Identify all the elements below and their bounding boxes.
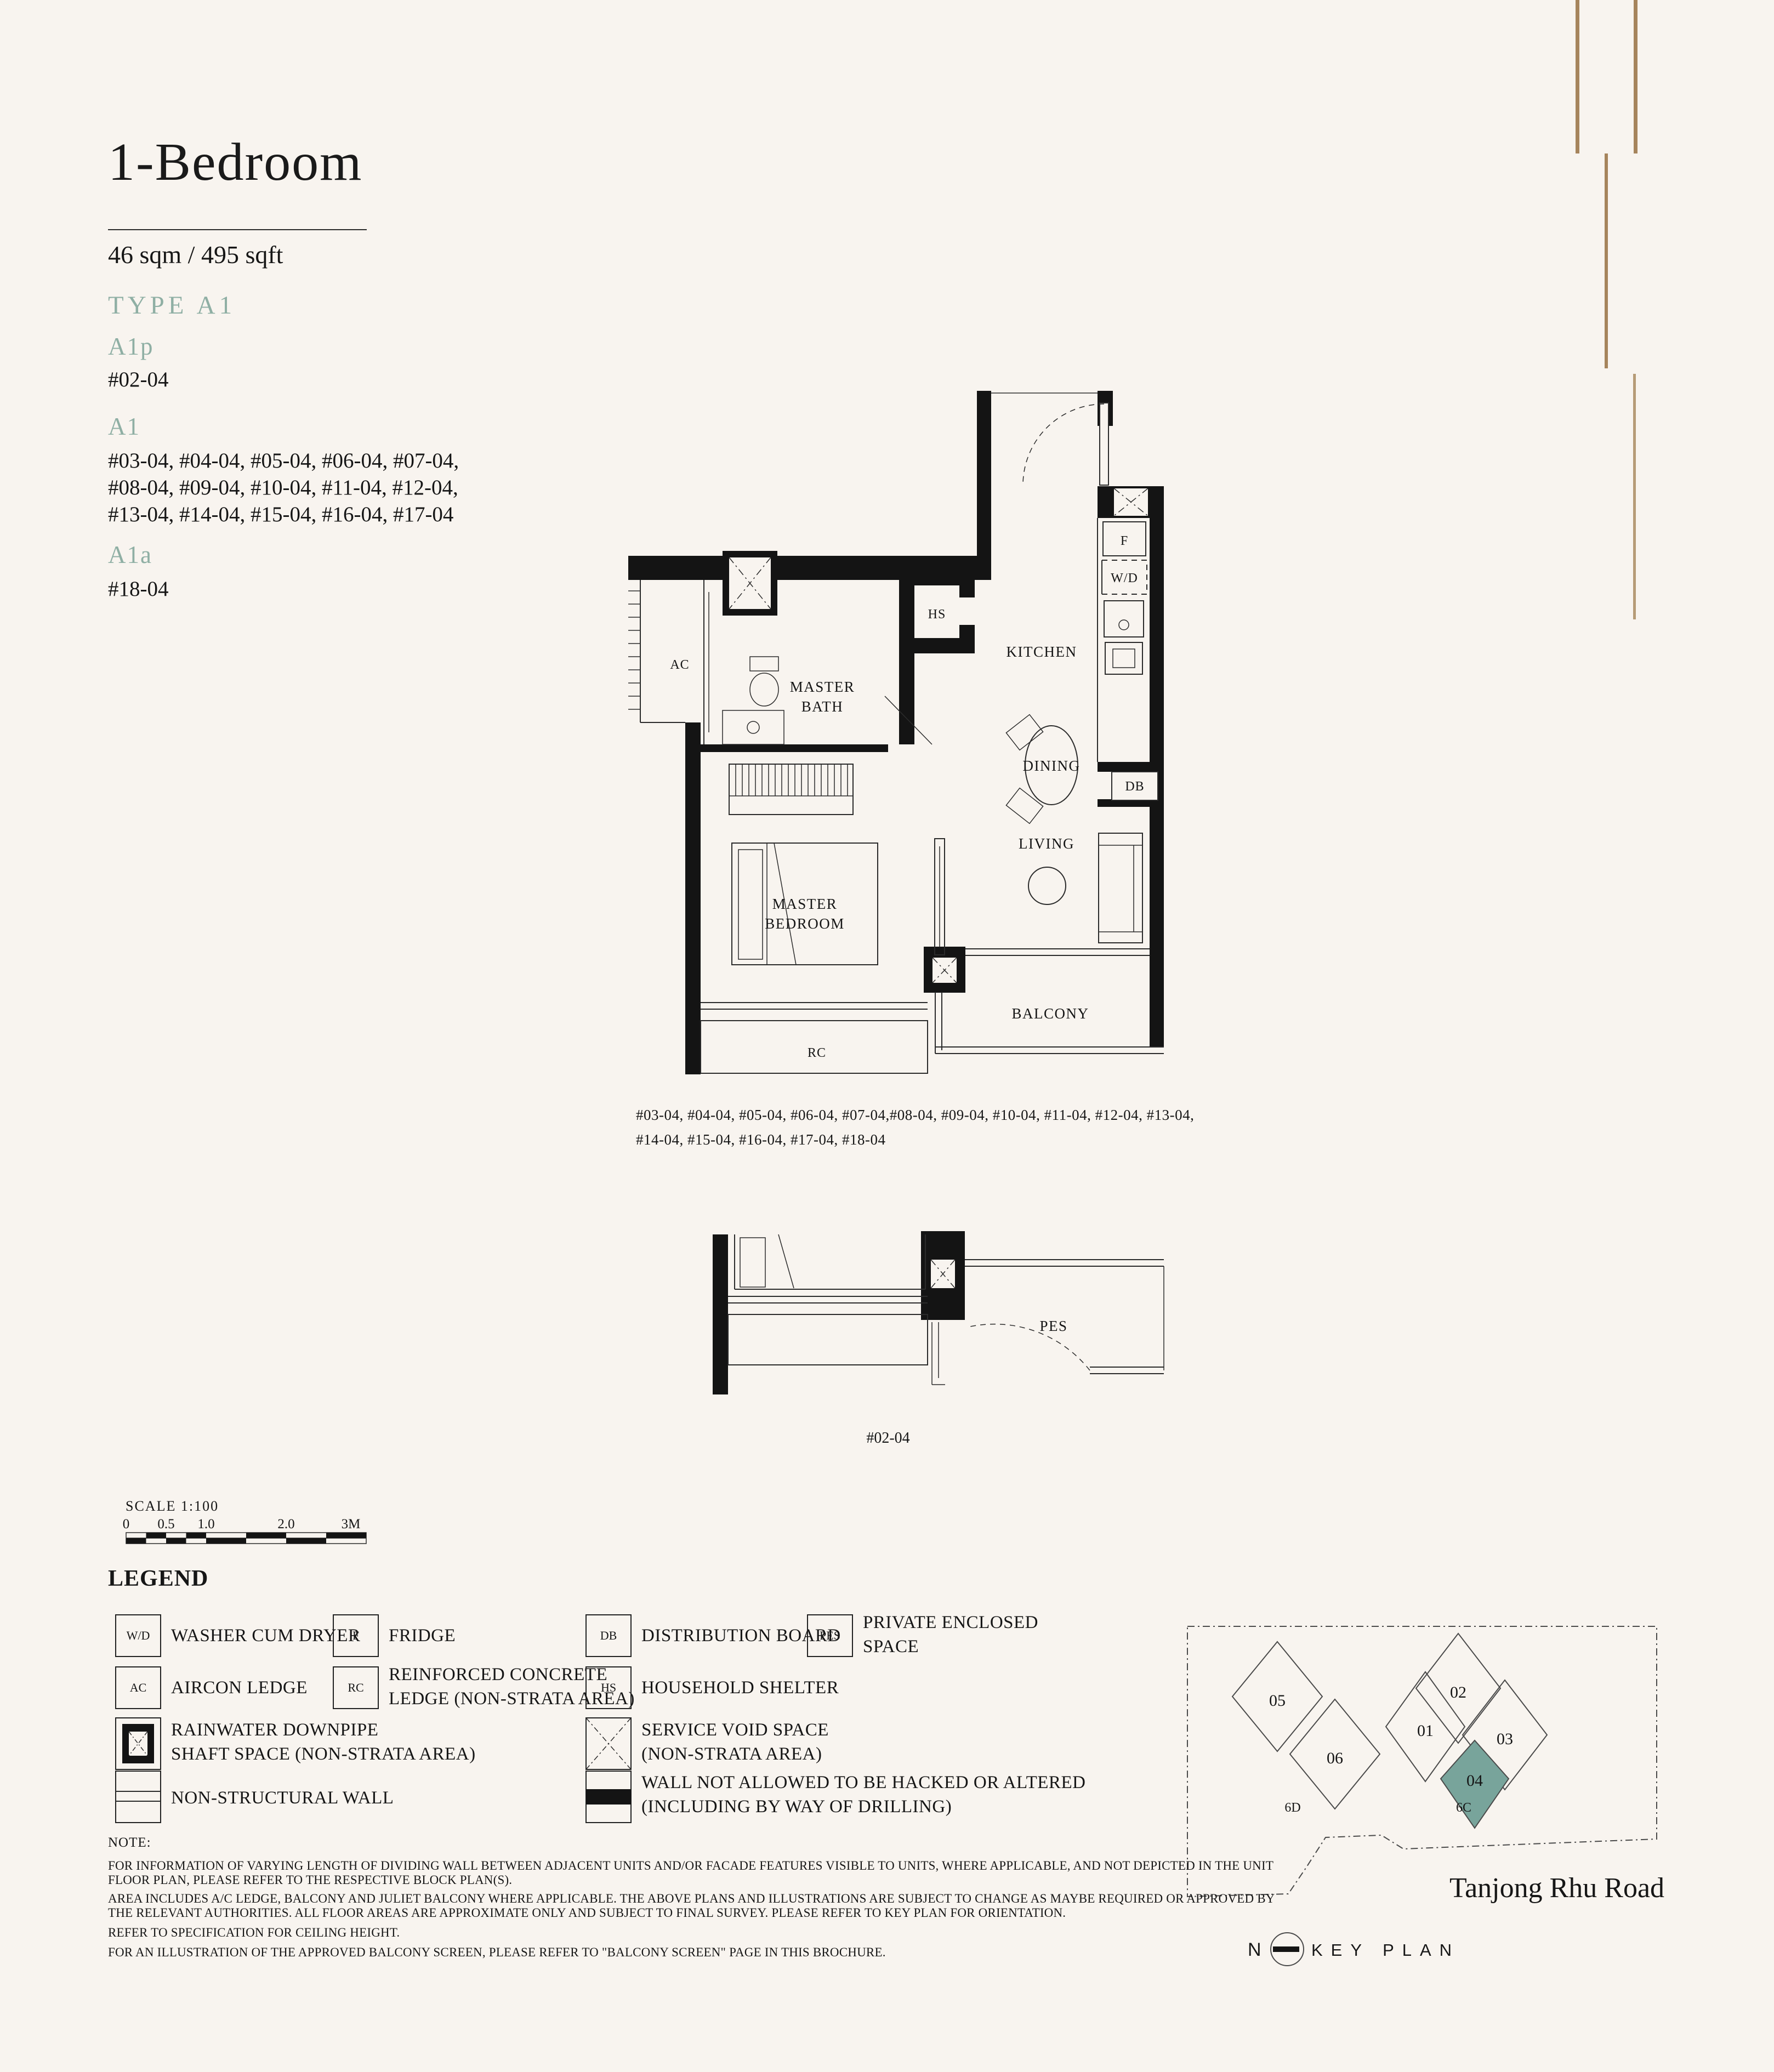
legend-symbol-pes: PES	[807, 1614, 853, 1657]
keyplan-block-6d: 6D	[1284, 1801, 1300, 1815]
keyplan-unit-04: 04	[1466, 1772, 1483, 1790]
note-p2-l2: THE RELEVANT AUTHORITIES. ALL FLOOR AREA…	[108, 1906, 1066, 1919]
coffee-table	[1028, 867, 1066, 904]
rainwater-shaft-icon	[729, 557, 771, 609]
balcony	[933, 949, 1164, 1054]
variant-a1-line-3: #13-04, #14-04, #15-04, #16-04, #17-04	[108, 501, 459, 528]
keyplan-block-6c: 6C	[1456, 1801, 1471, 1815]
legend-label-rainwater: RAINWATER DOWNPIPE SHAFT SPACE (NON-STRA…	[171, 1718, 476, 1766]
main-plan-caption-line-2: #14-04, #15-04, #16-04, #17-04, #18-04	[636, 1128, 1194, 1152]
legend-label-rainwater-line-1: RAINWATER DOWNPIPE	[171, 1718, 476, 1742]
note-p1-l1: FOR INFORMATION OF VARYING LENGTH OF DIV…	[108, 1859, 1273, 1872]
scale-label: SCALE 1:100	[126, 1498, 219, 1514]
road-label: Tanjong Rhu Road	[1403, 1872, 1710, 1904]
rc-ledge	[701, 1003, 928, 1073]
legend-label-wd: WASHER CUM DRYER	[171, 1624, 360, 1648]
variant-units-a1: #03-04, #04-04, #05-04, #06-04, #07-04, …	[108, 447, 459, 528]
legend-symbol-db: DB	[585, 1614, 632, 1657]
room-label-living: LIVING	[1019, 835, 1074, 852]
lower-plan-caption: #02-04	[795, 1430, 981, 1447]
legend-label-f: FRIDGE	[389, 1624, 456, 1648]
legend-label-hs: HOUSEHOLD SHELTER	[641, 1676, 839, 1700]
sofa	[1099, 833, 1142, 943]
variant-units-a1a: #18-04	[108, 576, 169, 602]
room-label-master-bedroom-1: MASTER	[772, 896, 838, 912]
north-label: N	[1248, 1939, 1265, 1961]
key-plan: 05 06 02 01 03 04 6D 6C	[1187, 1626, 1657, 1966]
entry-door	[991, 393, 1108, 485]
main-plan-caption-line-1: #03-04, #04-04, #05-04, #06-04, #07-04,#…	[636, 1103, 1194, 1128]
legend-label-service-void-line-1: SERVICE VOID SPACE	[641, 1718, 829, 1742]
wardrobe	[729, 764, 853, 815]
room-label-balcony: BALCONY	[1011, 1005, 1089, 1022]
legend-symbol-rainwater-downpipe-icon	[115, 1717, 161, 1773]
scale-tick-20: 2.0	[277, 1517, 294, 1532]
keyplan-unit-06: 06	[1327, 1749, 1343, 1767]
legend-label-service-void-line-2: (NON-STRATA AREA)	[641, 1742, 829, 1766]
legend-symbol-f: F	[333, 1614, 379, 1657]
legend-label-no-hack-line-1: WALL NOT ALLOWED TO BE HACKED OR ALTERED	[641, 1771, 1085, 1795]
room-label-pes: PES	[1039, 1318, 1067, 1334]
gold-lines-decoration	[1576, 0, 1637, 619]
unit-type-label: TYPE A1	[108, 291, 236, 320]
scale-tick-05: 0.5	[157, 1517, 174, 1532]
legend-symbol-rc: RC	[333, 1666, 379, 1709]
legend-label-rainwater-line-2: SHAFT SPACE (NON-STRATA AREA)	[171, 1742, 476, 1766]
note-p1-l2: FLOOR PLAN, PLEASE REFER TO THE RESPECTI…	[108, 1874, 512, 1886]
scale-tick-10: 1.0	[197, 1517, 214, 1532]
unit-area: 46 sqm / 495 sqft	[108, 240, 283, 269]
title-underline	[108, 229, 367, 230]
room-label-kitchen: KITCHEN	[1007, 644, 1077, 660]
label-db: DB	[1125, 779, 1144, 794]
legend-symbol-non-structural-wall-icon	[115, 1771, 161, 1826]
keyplan-unit-03: 03	[1497, 1730, 1513, 1748]
legend-symbol-ac: AC	[115, 1666, 161, 1709]
legend-heading: LEGEND	[108, 1566, 208, 1592]
legend-label-ac: AIRCON LEDGE	[171, 1676, 308, 1700]
keyplan-unit-01: 01	[1417, 1722, 1434, 1740]
keyplan-unit-05: 05	[1269, 1692, 1286, 1710]
note-heading: NOTE:	[108, 1835, 151, 1851]
north-compass-icon	[1271, 1933, 1304, 1966]
room-label-master-bath-2: BATH	[801, 698, 844, 715]
room-label-ac: AC	[670, 658, 689, 672]
variant-code-a1: A1	[108, 412, 140, 441]
scale-ruler	[126, 1533, 366, 1544]
variant-a1-line-1: #03-04, #04-04, #05-04, #06-04, #07-04,	[108, 447, 459, 474]
main-plan-caption: #03-04, #04-04, #05-04, #06-04, #07-04,#…	[636, 1103, 1194, 1152]
legend-symbol-wd: W/D	[115, 1614, 161, 1657]
label-fridge: F	[1121, 534, 1128, 548]
keyplan-title: KEY PLAN	[1311, 1940, 1460, 1960]
legend-label-pes: PRIVATE ENCLOSED SPACE	[863, 1610, 1038, 1659]
floor-plan-lower: PES	[713, 1231, 1164, 1394]
label-washer-dryer: W/D	[1111, 571, 1138, 585]
floor-plan-main: AC HS KITCHEN MASTER BATH F W/D DINING D…	[628, 391, 1164, 1074]
variant-code-a1p: A1p	[108, 332, 154, 361]
legend-label-service-void: SERVICE VOID SPACE (NON-STRATA AREA)	[641, 1718, 829, 1766]
legend-symbol-hs: HS	[585, 1666, 632, 1709]
legend-symbol-service-void-icon	[585, 1717, 632, 1773]
variant-code-a1a: A1a	[108, 540, 152, 569]
legend-label-non-structural: NON-STRUCTURAL WALL	[171, 1786, 394, 1810]
walls	[628, 391, 1164, 1074]
scale-tick-0: 0	[123, 1517, 130, 1532]
legend-label-pes-line-2: SPACE	[863, 1635, 1038, 1659]
ac-ledge	[628, 580, 709, 744]
room-label-master-bath-1: MASTER	[790, 679, 855, 695]
label-rc: RC	[808, 1046, 826, 1060]
variant-units-a1p: #02-04	[108, 366, 169, 393]
site-boundary	[1187, 1626, 1657, 1897]
scale-bar: SCALE 1:100 0 0.5 1.0 2.0 3M	[123, 1498, 366, 1544]
note-p3-l1: REFER TO SPECIFICATION FOR CEILING HEIGH…	[108, 1926, 400, 1939]
legend-symbol-no-hack-wall-icon	[585, 1771, 632, 1826]
legend-label-pes-line-1: PRIVATE ENCLOSED	[863, 1610, 1038, 1635]
room-label-dining: DINING	[1023, 758, 1081, 774]
note-p4-l1: FOR AN ILLUSTRATION OF THE APPROVED BALC…	[108, 1946, 886, 1959]
sliding-partition	[935, 839, 945, 955]
page-title: 1-Bedroom	[108, 132, 362, 193]
keyplan-unit-02: 02	[1450, 1683, 1466, 1701]
room-label-hs: HS	[928, 607, 946, 622]
variant-a1-line-2: #08-04, #09-04, #10-04, #11-04, #12-04,	[108, 474, 459, 501]
legend-label-no-hack-line-2: (INCLUDING BY WAY OF DRILLING)	[641, 1795, 1085, 1819]
scale-tick-3m: 3M	[342, 1517, 361, 1532]
room-label-master-bedroom-2: BEDROOM	[765, 915, 845, 932]
legend-label-no-hack: WALL NOT ALLOWED TO BE HACKED OR ALTERED…	[641, 1771, 1085, 1819]
note-p2-l1: AREA INCLUDES A/C LEDGE, BALCONY AND JUL…	[108, 1892, 1275, 1905]
